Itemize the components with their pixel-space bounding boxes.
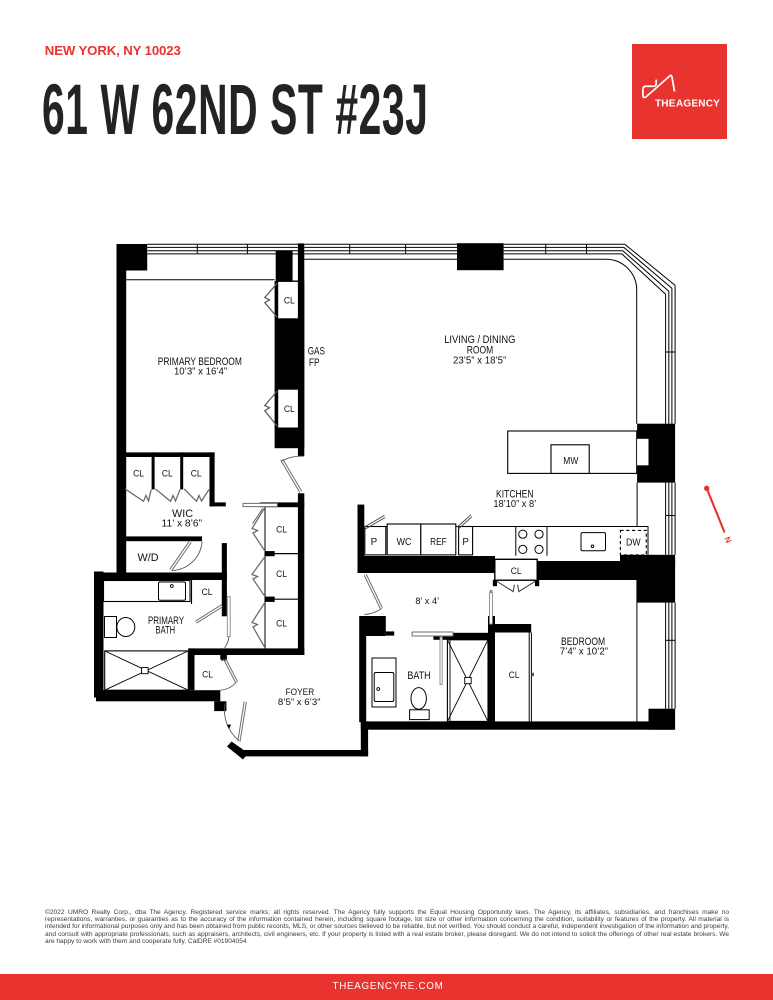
svg-text:W/D: W/D	[138, 552, 159, 564]
svg-text:CL: CL	[202, 587, 213, 598]
svg-text:CL: CL	[284, 404, 295, 415]
svg-text:BATH: BATH	[156, 624, 176, 636]
svg-text:FP: FP	[309, 357, 320, 369]
svg-text:CL: CL	[133, 469, 144, 480]
svg-text:CL: CL	[191, 469, 202, 480]
svg-text:BATH: BATH	[407, 670, 430, 682]
svg-text:CL: CL	[276, 569, 287, 580]
svg-text:11’ x 8’6”: 11’ x 8’6”	[162, 519, 203, 530]
svg-text:CL: CL	[162, 469, 173, 480]
svg-text:P: P	[371, 537, 378, 548]
svg-text:CL: CL	[509, 670, 520, 681]
svg-text:8’ x 4’: 8’ x 4’	[415, 596, 439, 607]
svg-text:CL: CL	[276, 619, 287, 630]
svg-text:P: P	[462, 537, 469, 548]
svg-text:CL: CL	[511, 566, 522, 577]
svg-text:GAS: GAS	[308, 346, 325, 358]
svg-text:CL: CL	[202, 669, 213, 680]
svg-text:WC: WC	[397, 537, 412, 548]
svg-text:CL: CL	[284, 296, 295, 307]
svg-text:N: N	[723, 535, 734, 544]
svg-text:DW: DW	[626, 538, 641, 549]
svg-text:REF: REF	[430, 537, 447, 548]
svg-text:7’4” x 10’2”: 7’4” x 10’2”	[560, 647, 608, 658]
svg-text:CL: CL	[276, 524, 287, 535]
svg-text:8’5” x 6’3”: 8’5” x 6’3”	[278, 697, 321, 708]
svg-text:23’5” x 18’5”: 23’5” x 18’5”	[453, 356, 506, 367]
svg-text:18’10” x 8’: 18’10” x 8’	[493, 499, 536, 510]
svg-text:10’3” x 16’4”: 10’3” x 16’4”	[174, 366, 227, 377]
svg-text:MW: MW	[563, 456, 579, 467]
